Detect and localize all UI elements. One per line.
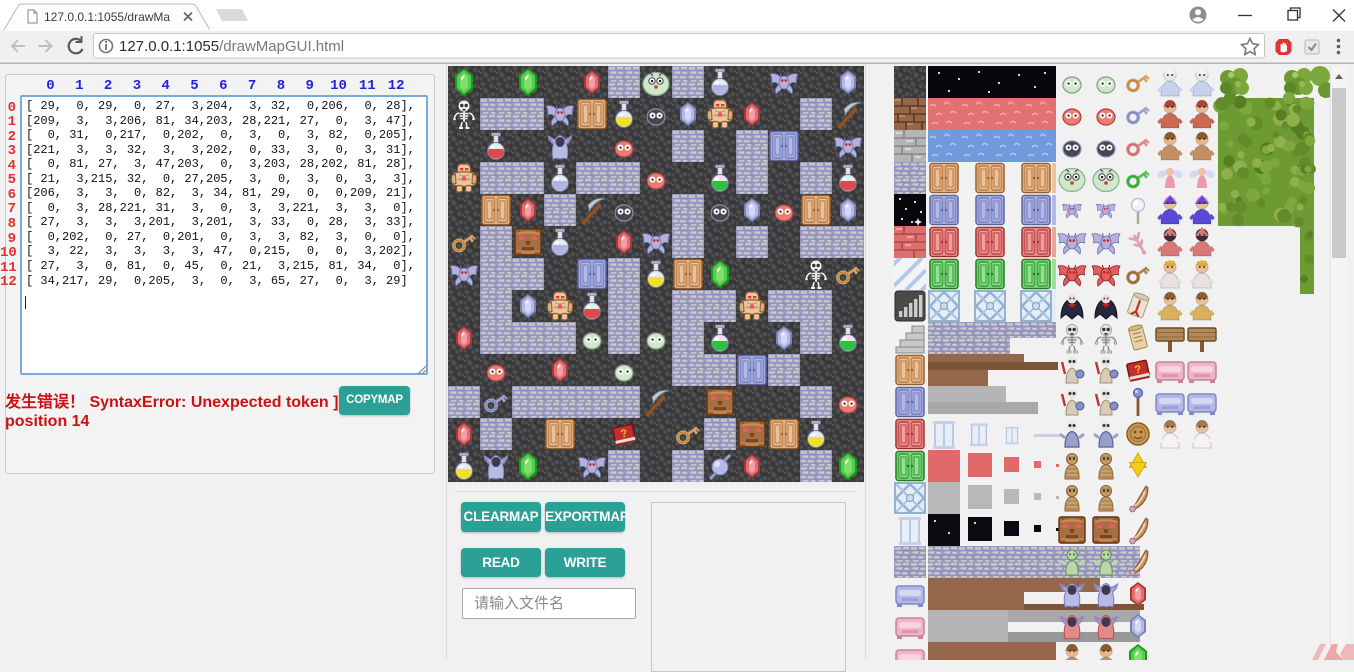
svg-text:127.0.0.1:1055/drawMa: 127.0.0.1:1055/drawMa	[44, 10, 170, 24]
svg-text:127.0.0.1:1055/drawMapGUI.html: 127.0.0.1:1055/drawMapGUI.html	[119, 38, 344, 55]
